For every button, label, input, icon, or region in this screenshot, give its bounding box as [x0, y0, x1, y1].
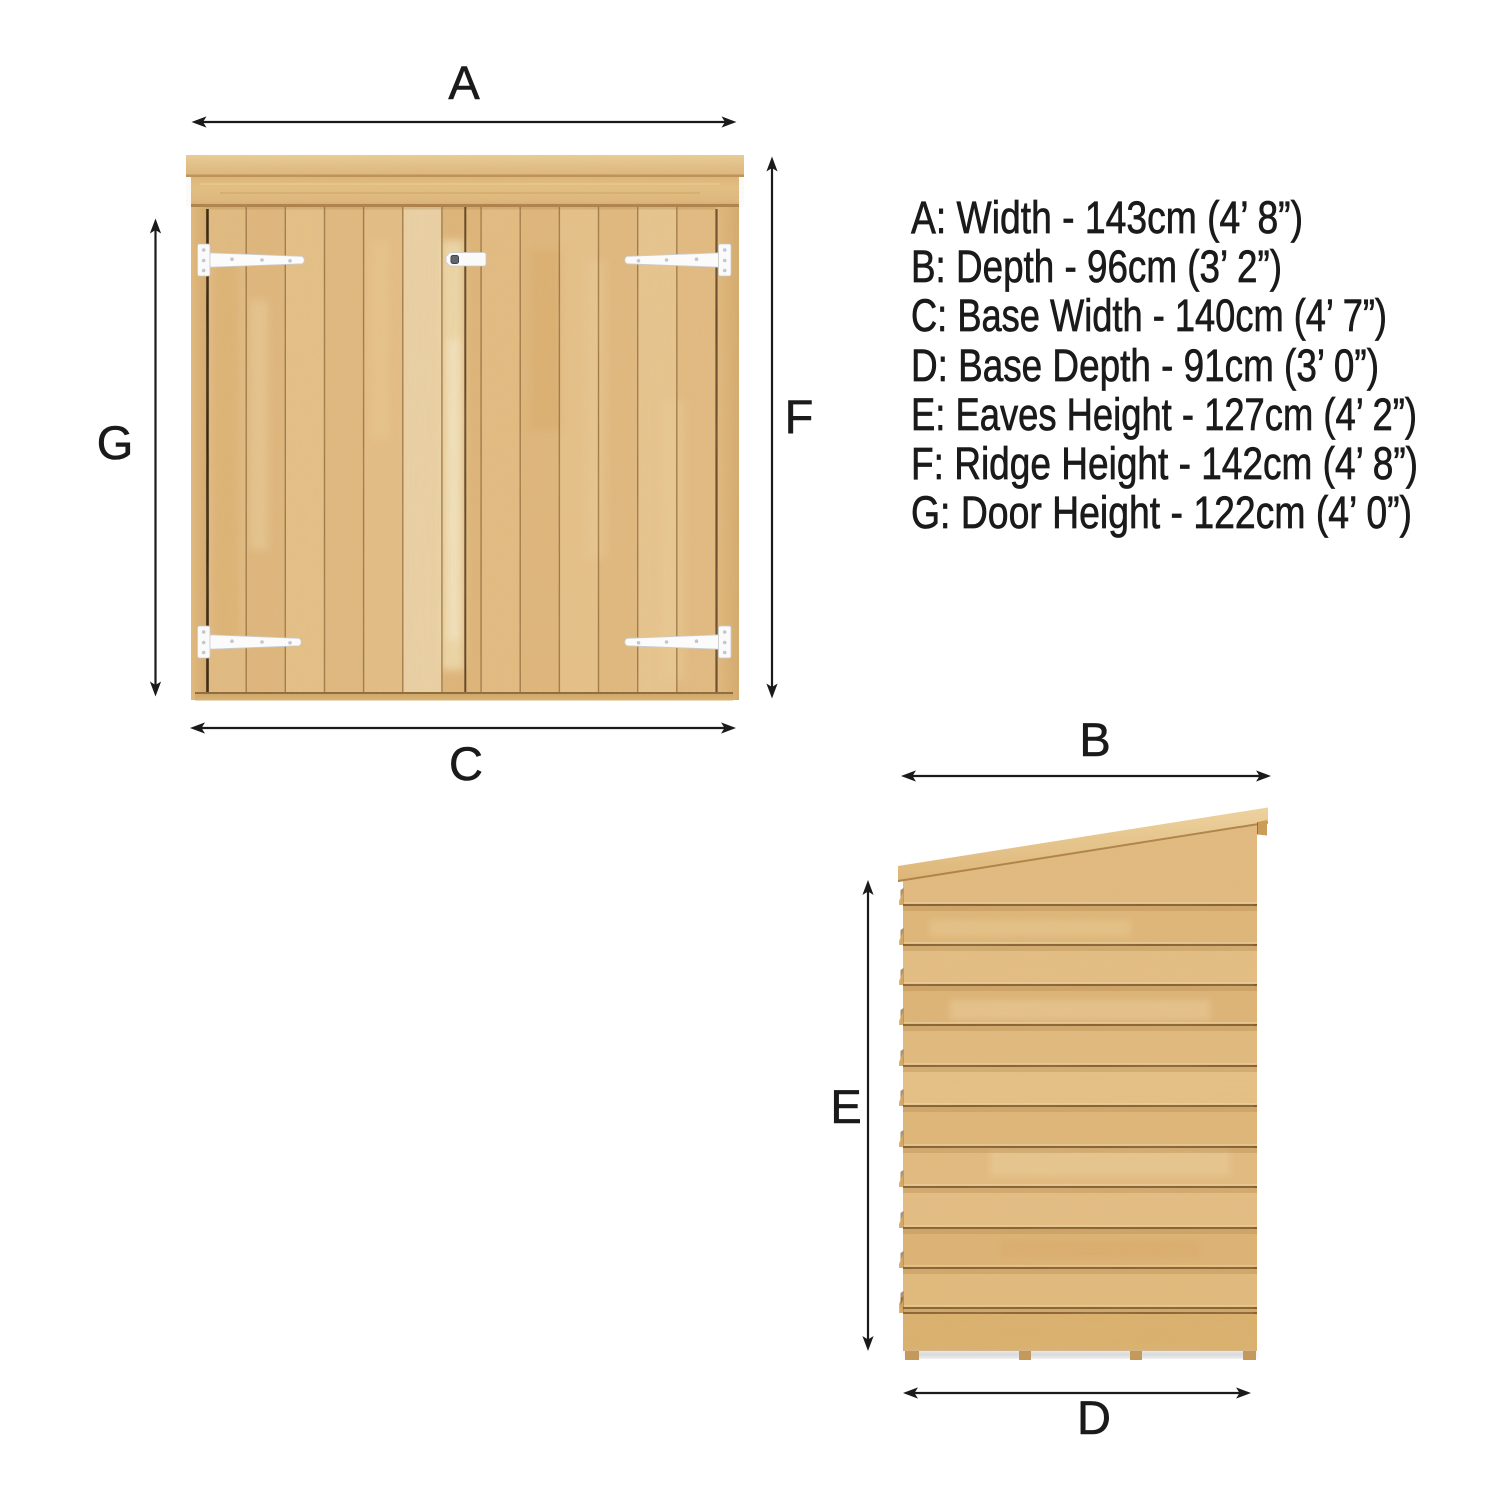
svg-text:E: Eaves Height - 127cm (4’ 2”: E: Eaves Height - 127cm (4’ 2”) [911, 389, 1417, 440]
svg-text:A: Width - 143cm (4’ 8”): A: Width - 143cm (4’ 8”) [911, 192, 1303, 243]
svg-text:C: Base Width - 140cm (4’ 7”): C: Base Width - 140cm (4’ 7”) [911, 290, 1387, 341]
svg-text:E: E [830, 1080, 861, 1133]
svg-text:C: C [449, 737, 483, 790]
svg-text:F: Ridge Height - 142cm (4’ 8”: F: Ridge Height - 142cm (4’ 8”) [911, 438, 1418, 489]
svg-text:G: Door Height - 122cm (4’ 0”): G: Door Height - 122cm (4’ 0”) [911, 487, 1412, 538]
svg-text:G: G [97, 416, 134, 469]
svg-text:D: Base Depth - 91cm (3’ 0”): D: Base Depth - 91cm (3’ 0”) [911, 340, 1379, 391]
svg-text:B: Depth - 96cm (3’ 2”): B: Depth - 96cm (3’ 2”) [911, 241, 1282, 292]
svg-text:B: B [1079, 713, 1110, 766]
svg-text:D: D [1077, 1391, 1111, 1444]
svg-text:F: F [785, 390, 814, 443]
svg-text:A: A [448, 56, 480, 109]
